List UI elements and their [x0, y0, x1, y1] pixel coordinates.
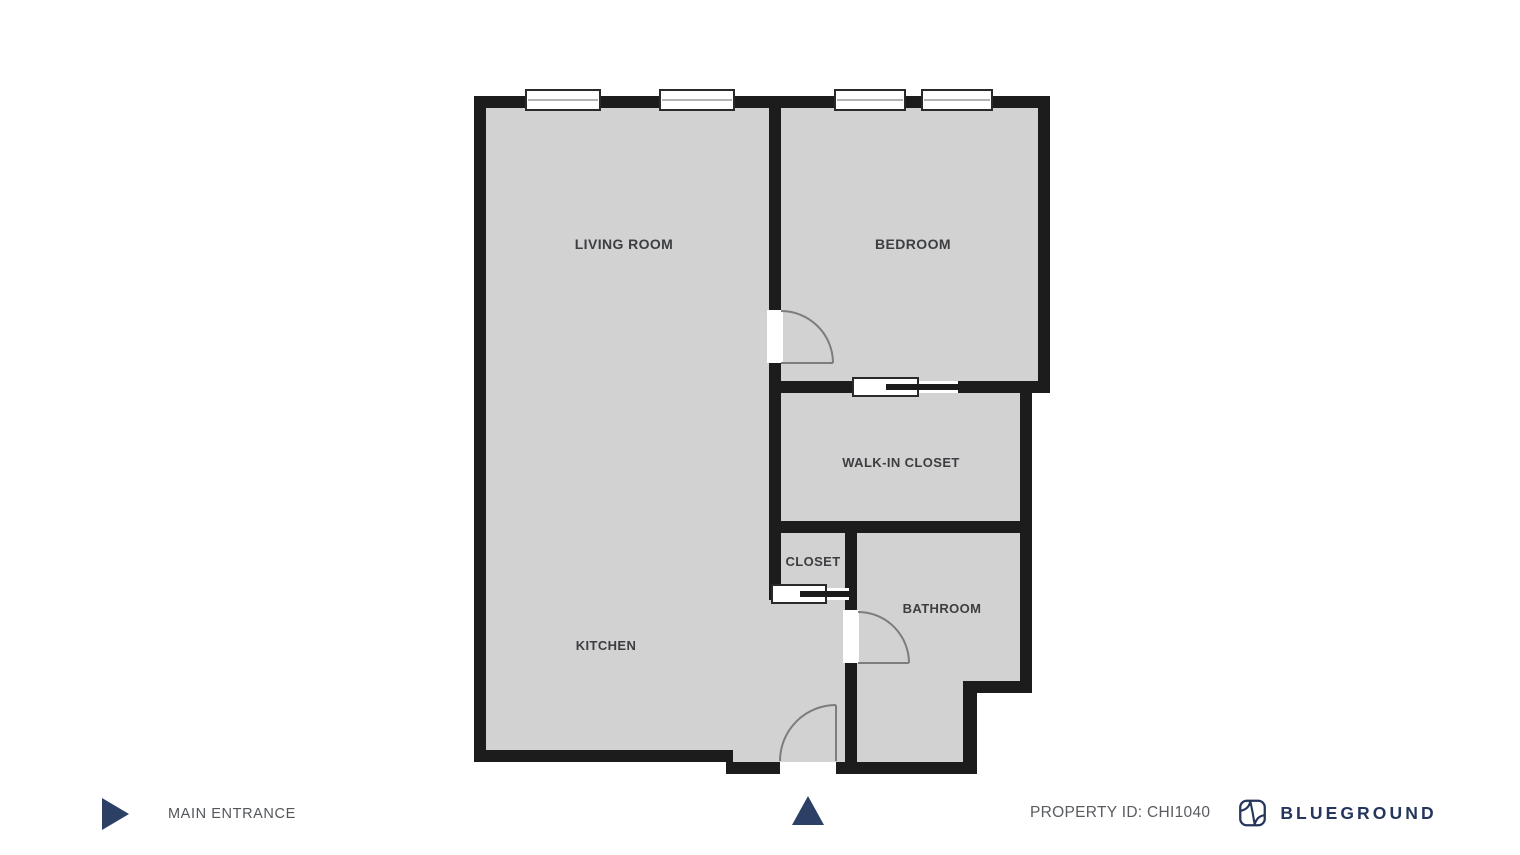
wall-left	[474, 96, 486, 762]
main-entrance-label: MAIN ENTRANCE	[168, 806, 296, 822]
opening-bathroom-door	[843, 610, 859, 663]
floor-plan-page: LIVING ROOM BEDROOM WALK-IN CLOSET CLOSE…	[0, 0, 1520, 855]
wall-bottom-step	[726, 762, 780, 774]
room-label-kitchen: KITCHEN	[576, 638, 637, 653]
room-label-living-room: LIVING ROOM	[575, 236, 674, 252]
sliding-door-panel	[886, 384, 958, 390]
room-label-bedroom: BEDROOM	[875, 236, 951, 252]
floor-plan-drawing: LIVING ROOM BEDROOM WALK-IN CLOSET CLOSE…	[0, 0, 1520, 855]
room-label-walk-in-closet: WALK-IN CLOSET	[842, 455, 960, 470]
wall-walkin-right	[1020, 381, 1032, 693]
footer: PROPERTY ID: CHI1040 BLUEGROUND	[1030, 795, 1437, 831]
brand-name: BLUEGROUND	[1280, 803, 1436, 824]
triangle-right-icon	[102, 798, 129, 830]
brand-lockup: BLUEGROUND	[1238, 799, 1436, 827]
wall-bottom-right	[836, 762, 977, 774]
room-label-bathroom: BATHROOM	[903, 601, 982, 616]
entrance-marker-icon	[792, 796, 824, 825]
wall-right-bedroom	[1038, 96, 1050, 393]
wall-walkin-bottom	[769, 521, 1032, 533]
sliding-door-panel	[800, 591, 851, 597]
property-id-label: PROPERTY ID: CHI1040	[1030, 804, 1210, 822]
entrance-legend: MAIN ENTRANCE	[102, 797, 296, 831]
blueground-logo-icon	[1238, 799, 1267, 827]
opening-bedroom-door	[767, 310, 783, 363]
room-label-closet: CLOSET	[785, 554, 840, 569]
floor-area	[474, 96, 1050, 774]
wall-notch-vertical	[963, 681, 977, 774]
wall-kitchen-bottom	[474, 750, 733, 762]
